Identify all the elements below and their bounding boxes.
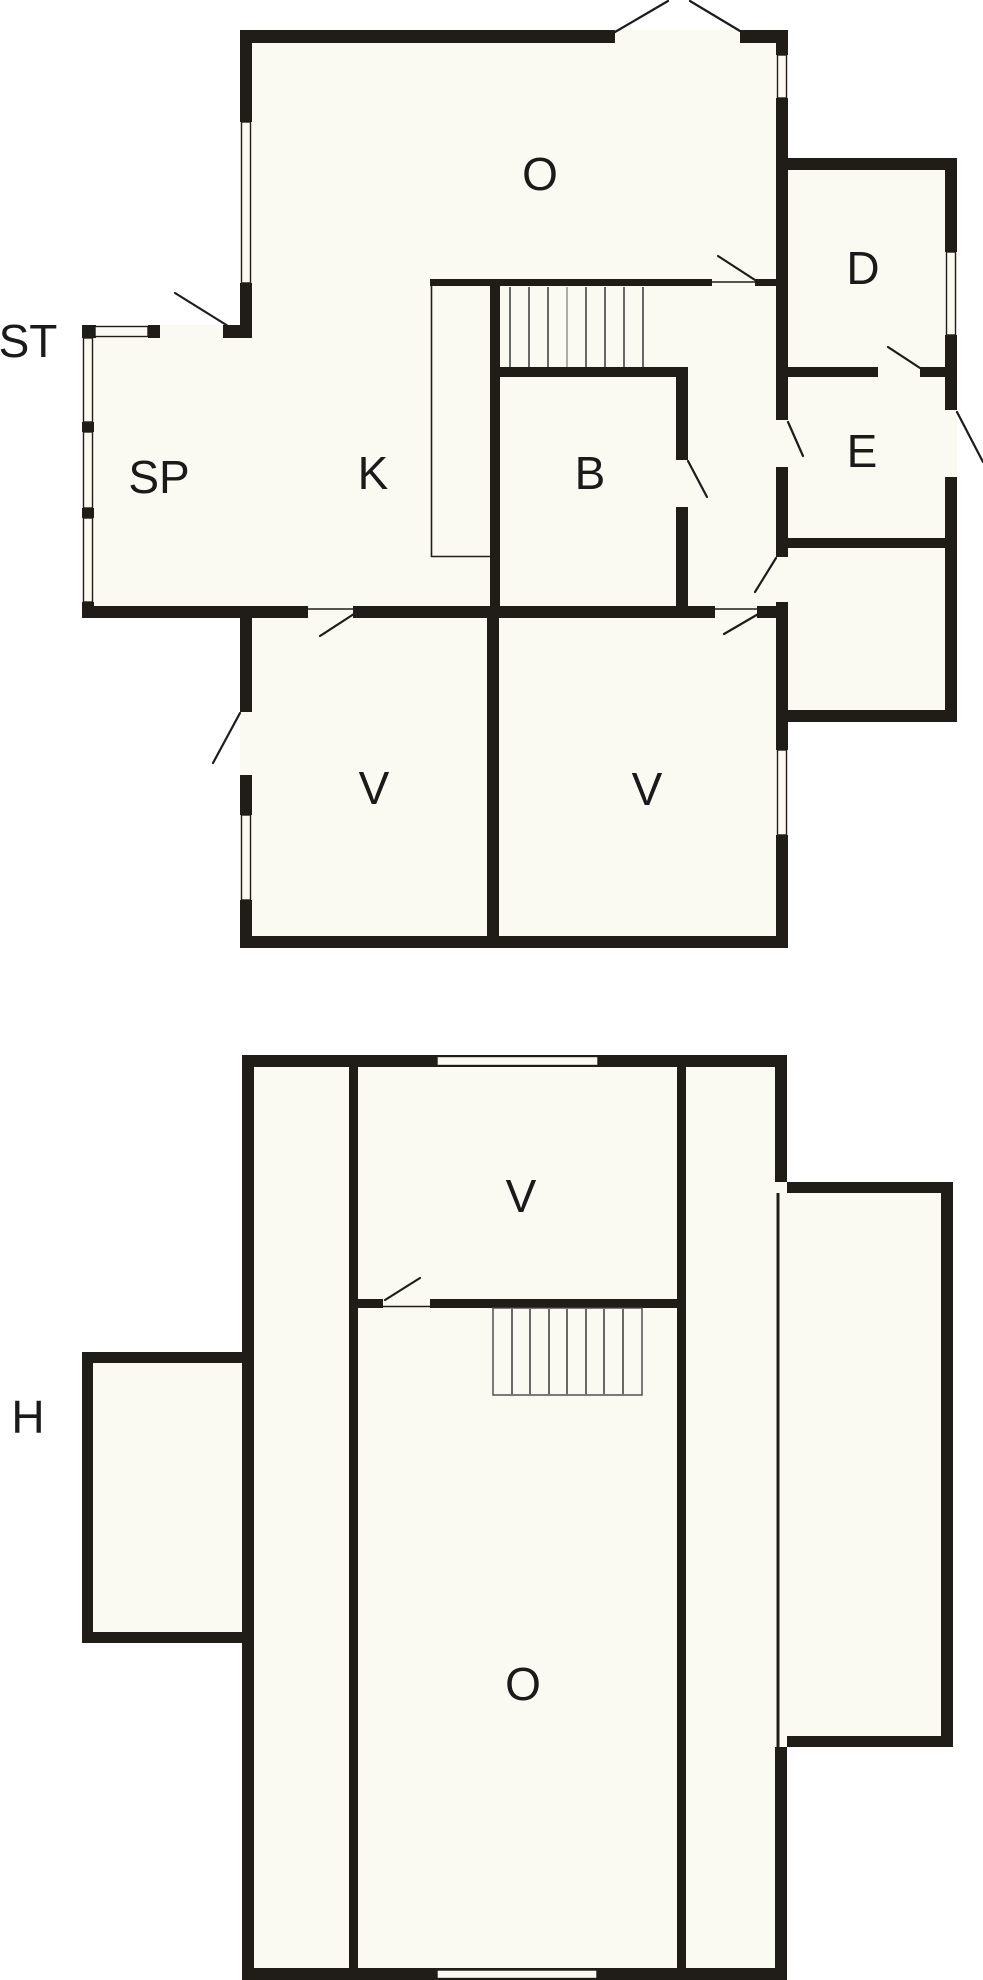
wall-segment <box>490 367 688 377</box>
wall-segment <box>775 1055 787 1182</box>
wall-segment <box>776 602 788 750</box>
wall-segment <box>82 1632 254 1643</box>
room-label-v-right: V <box>632 763 663 815</box>
wall-segment <box>240 936 788 948</box>
room-label-v: V <box>506 1170 537 1222</box>
room-label-st: ST <box>0 315 57 367</box>
bumpout-floor-area <box>775 1182 953 1747</box>
window <box>778 55 787 98</box>
wall-segment <box>677 1067 686 1968</box>
wall-segment <box>941 1182 953 1747</box>
door-swing <box>213 713 240 763</box>
room-label-o: O <box>505 1658 541 1710</box>
upper-floor-plan: O D ST SP K B E V V <box>0 1 983 948</box>
wall-segment <box>252 606 308 618</box>
wall-segment <box>945 158 957 252</box>
wall-segment <box>82 422 94 432</box>
wall-segment <box>776 835 788 948</box>
wall-segment <box>82 1352 93 1643</box>
wall-segment <box>353 606 715 618</box>
window <box>84 432 93 508</box>
wall-segment <box>358 1299 383 1308</box>
wall-segment <box>490 279 500 618</box>
floor-plan-page: O D ST SP K B E V V <box>0 0 983 1980</box>
wall-segment <box>920 367 945 377</box>
room-label-sp: SP <box>128 451 189 503</box>
door-swing <box>175 293 228 326</box>
wall-segment <box>82 606 240 618</box>
wall-segment <box>349 1067 358 1968</box>
lower-floor-plan: V H O <box>11 1055 953 1980</box>
window <box>947 252 956 335</box>
room-label-k: K <box>358 447 389 499</box>
room-label-e: E <box>847 425 878 477</box>
main-floor-area <box>240 30 788 948</box>
wall-segment <box>788 538 945 548</box>
wall-segment <box>242 1055 254 1968</box>
window <box>778 750 787 835</box>
wall-segment <box>430 1299 677 1308</box>
wall-segment <box>487 618 499 936</box>
wall-segment <box>82 1352 254 1363</box>
wall-segment <box>776 30 788 55</box>
window <box>84 338 93 422</box>
wall-segment <box>787 1182 953 1193</box>
window <box>437 1970 597 1979</box>
window <box>242 815 251 900</box>
wall-segment <box>945 335 957 410</box>
room-label-d: D <box>846 242 879 294</box>
window <box>95 327 148 337</box>
room-label-h: H <box>11 1391 44 1443</box>
wall-segment <box>776 98 788 420</box>
wall-segment <box>676 377 688 460</box>
annex-floor-area <box>82 1352 254 1643</box>
wall-segment <box>240 775 252 815</box>
wall-segment <box>755 279 788 286</box>
wall-segment <box>676 507 688 618</box>
wall-segment <box>788 158 957 170</box>
wall-segment <box>82 325 96 338</box>
room-label-v-left: V <box>359 762 390 814</box>
room-label-b: B <box>575 447 606 499</box>
wall-segment <box>775 1747 787 1968</box>
wall-segment <box>788 710 957 722</box>
entrance-door-leaf <box>615 1 668 32</box>
room-label-o: O <box>522 148 558 200</box>
door-swing <box>957 412 983 462</box>
wall-segment <box>148 325 160 338</box>
wall-thin-segment <box>777 1193 780 1747</box>
window <box>84 518 93 602</box>
wall-segment <box>945 477 957 722</box>
wall-segment <box>430 279 712 286</box>
wall-segment <box>788 367 878 377</box>
wall-segment <box>82 508 94 518</box>
entrance-door-leaf <box>690 1 740 31</box>
floor-plan-drawing: O D ST SP K B E V V <box>0 0 983 1980</box>
wall-segment <box>240 30 252 122</box>
window <box>437 1057 598 1066</box>
wall-segment <box>776 467 788 557</box>
wall-segment <box>223 325 252 338</box>
wall-segment <box>240 606 252 712</box>
wall-segment <box>787 1736 953 1747</box>
wall-segment <box>240 30 615 43</box>
window <box>242 122 251 283</box>
